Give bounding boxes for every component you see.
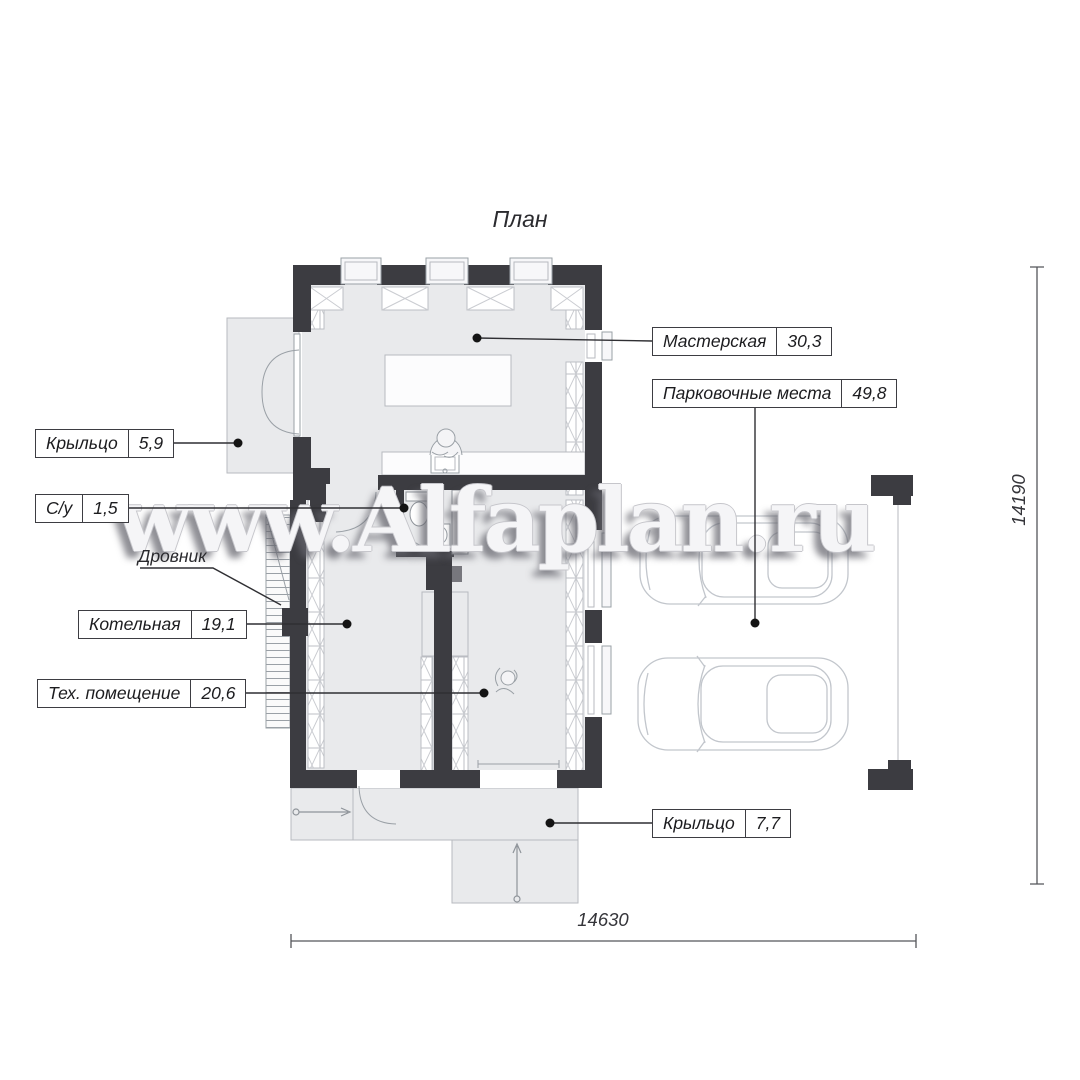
porch-top-left: [227, 318, 299, 473]
car-bottom: [638, 656, 848, 752]
room-name: Мастерская: [653, 328, 776, 355]
workbench: [382, 452, 585, 475]
dimension-height: 14190: [1008, 452, 1030, 548]
room-name: Крыльцо: [653, 810, 745, 837]
porch-bottom: [291, 788, 578, 903]
room-area: 30,3: [776, 328, 831, 355]
room-area: 5,9: [128, 430, 173, 457]
floor-plan-page: www.Alfaplan.ru План Крыльц: [0, 0, 1080, 1080]
label-porch-bottom: Крыльцо 7,7: [652, 809, 791, 838]
workshop-table: [385, 355, 511, 406]
room-name: Тех. помещение: [38, 680, 190, 707]
room-area: 1,5: [82, 495, 127, 522]
label-boiler-room: Котельная 19,1: [78, 610, 247, 639]
dimension-width: 14630: [555, 909, 651, 931]
floor-plan-drawing: [0, 0, 1080, 1080]
carport-posts: [868, 475, 913, 790]
room-name: Крыльцо: [36, 430, 128, 457]
label-porch-top: Крыльцо 5,9: [35, 429, 174, 458]
room-area: 7,7: [745, 810, 790, 837]
label-woodshed: Дровник: [138, 546, 207, 567]
room-name: С/у: [36, 495, 82, 522]
sink-icon: [432, 524, 450, 546]
interior-wall-center: [434, 590, 452, 788]
car-top: [640, 514, 848, 606]
room-area: 19,1: [191, 611, 246, 638]
room-name: Парковочные места: [653, 380, 841, 407]
room-area: 49,8: [841, 380, 896, 407]
room-name: Котельная: [79, 611, 191, 638]
label-wc: С/у 1,5: [35, 494, 129, 523]
label-parking: Парковочные места 49,8: [652, 379, 897, 408]
page-title: План: [440, 206, 600, 233]
label-workshop: Мастерская 30,3: [652, 327, 832, 356]
label-tech-room: Тех. помещение 20,6: [37, 679, 246, 708]
room-area: 20,6: [190, 680, 245, 707]
